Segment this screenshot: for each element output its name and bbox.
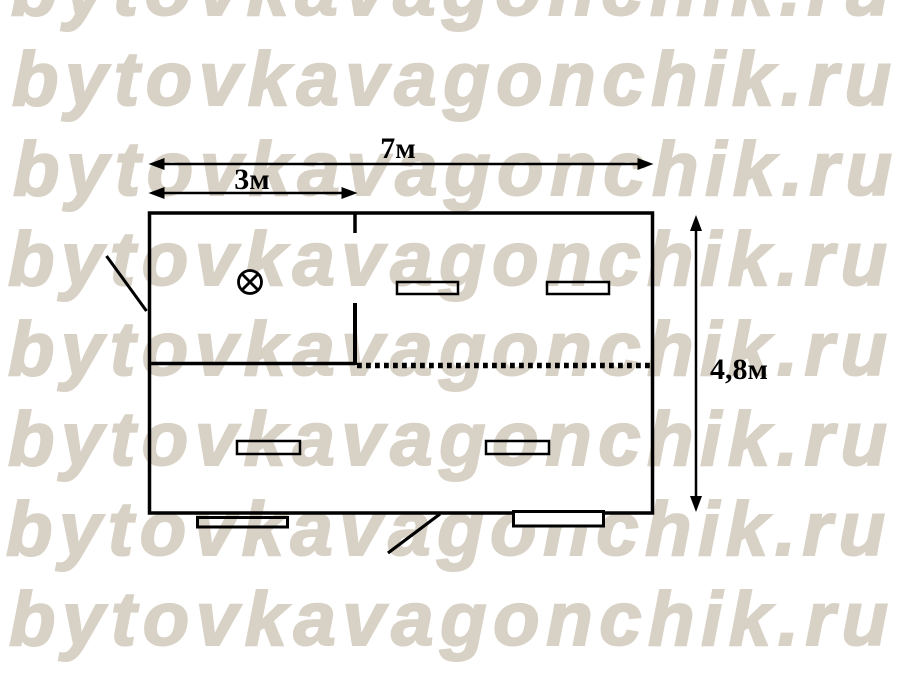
svg-text:7м: 7м [380, 132, 415, 165]
svg-text:4,8м: 4,8м [710, 353, 768, 386]
svg-text:3м: 3м [234, 163, 269, 196]
